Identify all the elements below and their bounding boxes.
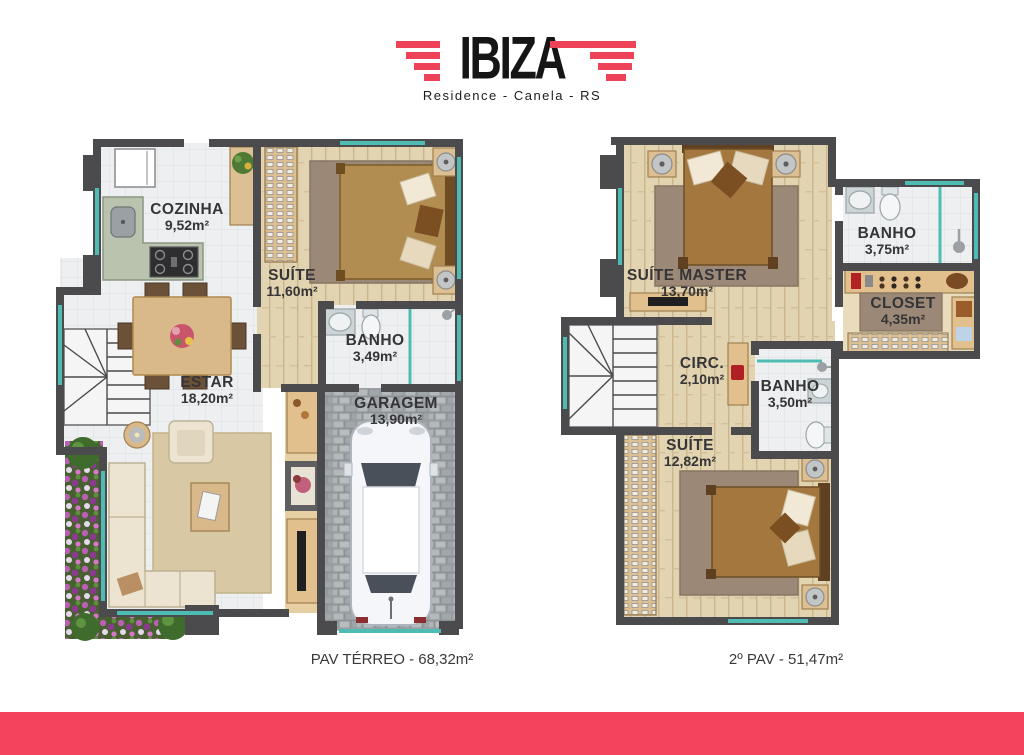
stove [150,247,198,277]
wardrobe [624,435,656,615]
room-label-banho: BANHO 3,49m² [346,332,405,364]
logo-stripe-icon [414,63,440,70]
nightstand [802,457,828,481]
room-label-circ: CIRC. 2,10m² [680,355,724,387]
logo-stripe-icon [406,52,440,59]
pav-terreo-drawing [45,133,465,645]
armchair [169,421,213,463]
footer-band [0,712,1024,755]
fridge [115,149,155,187]
room-label-closet: CLOSET 4,35m² [870,295,935,327]
car [344,421,438,625]
hall-desk [728,343,748,405]
room-label-suite: SUÍTE 11,60m² [266,267,317,299]
floorplan-pav-terreo: COZINHA 9,52m² SUÍTE 11,60m² BANHO 3,49m… [45,133,465,645]
red-vase [731,365,744,380]
console-table [287,519,319,603]
logo-stripe-icon [590,52,634,59]
logo-stripe-icon [424,74,440,81]
logo-stripe-icon [598,63,632,70]
wardrobe [265,147,297,262]
double-bed [678,143,778,269]
room-label-garagem: GARAGEM 13,90m² [354,395,438,427]
room-label-suite-master: SUÍTE MASTER 13,70m² [627,267,747,299]
brand-subtitle: Residence - Canela - RS [352,88,672,103]
shoe-rack [848,333,948,353]
double-bed [706,483,830,581]
logo-stripe-icon [606,74,626,81]
coffee-table [191,483,229,531]
nightstand [802,585,828,609]
logo-stripe-icon [550,41,636,48]
logo-row: IBIZA [352,28,672,90]
bathroom-sink [846,187,874,213]
brand-logo: IBIZA Residence - Canela - RS [352,28,672,108]
logo-stripe-icon [396,41,440,48]
floorplan-2-pav: SUÍTE MASTER 13,70m² BANHO 3,75m² CLOSET… [560,133,980,638]
room-label-banho-inferior: BANHO 3,50m² [761,378,820,410]
decor-niche [285,461,321,511]
room-label-estar: ESTAR 18,20m² [180,374,233,406]
dining-table [133,297,231,375]
caption-2-pav: 2º PAV - 51,47m² [729,651,843,668]
toilet [880,187,900,220]
room-label-suite-2: SUÍTE 12,82m² [664,437,716,469]
room-label-banho-superior: BANHO 3,75m² [858,225,917,257]
page: IBIZA Residence - Canela - RS [0,0,1024,755]
nightstand [648,151,676,177]
caption-pav-terreo: PAV TÉRREO - 68,32m² [311,651,474,668]
side-lamp-table [124,422,150,448]
nightstand [772,151,800,177]
room-label-cozinha: COZINHA 9,52m² [150,201,223,233]
hall-sideboard [287,391,319,453]
staircase [569,325,657,427]
